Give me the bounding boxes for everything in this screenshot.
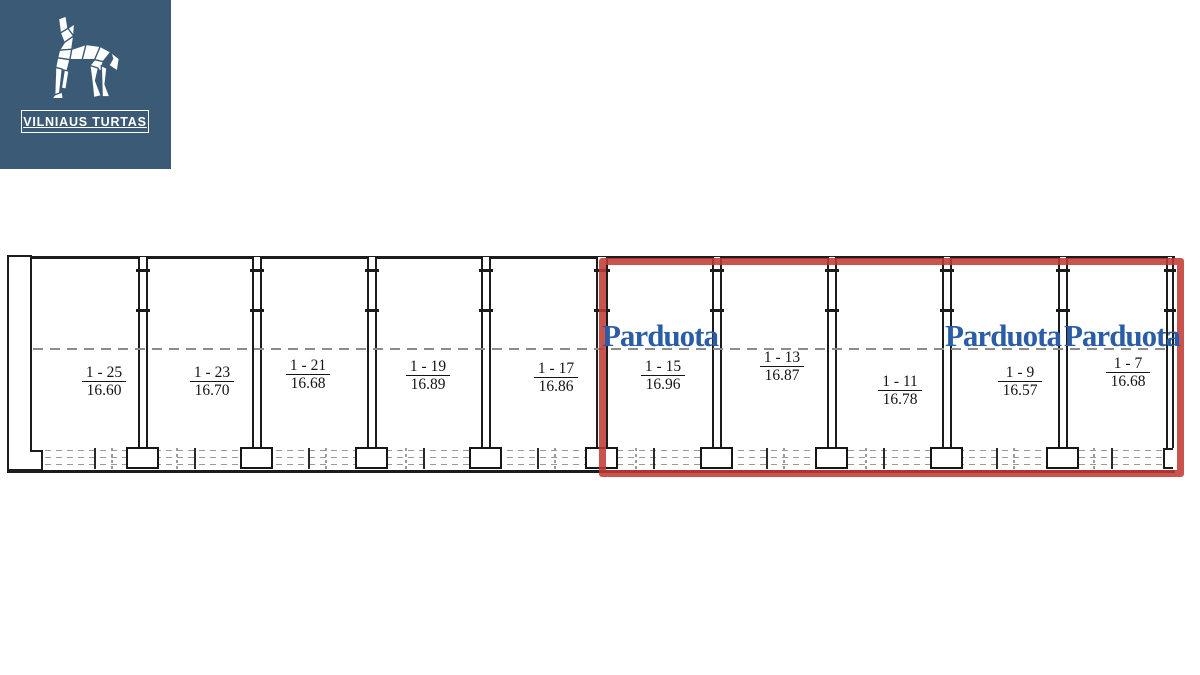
- wolf-logo-icon: [34, 16, 140, 111]
- unit-area: 16.60: [82, 383, 126, 398]
- unit-area: 16.86: [534, 379, 578, 394]
- strip-divider: [308, 448, 310, 469]
- unit-id: 1 - 23: [190, 365, 234, 380]
- unit-area: 16.70: [190, 383, 234, 398]
- wall-footing: [240, 447, 273, 469]
- unit-1-25: 1 - 25 16.60: [82, 365, 126, 398]
- brand-name: VILNIAUS TURTAS: [23, 115, 147, 129]
- unit-1-17: 1 - 17 16.86: [534, 361, 578, 394]
- brand-name-frame: VILNIAUS TURTAS: [21, 110, 149, 133]
- brand-logo: VILNIAUS TURTAS: [0, 0, 171, 169]
- sold-label-unit-1-9: Parduota: [945, 320, 1061, 351]
- unit-1-21: 1 - 21 16.68: [286, 358, 330, 391]
- unit-id: 1 - 21: [286, 358, 330, 373]
- strip-divider: [111, 448, 113, 469]
- left-wall-footing: [30, 450, 43, 471]
- unit-id: 1 - 17: [534, 361, 578, 376]
- unit-id: 1 - 25: [82, 365, 126, 380]
- strip-divider: [554, 448, 556, 469]
- strip-divider: [176, 448, 178, 469]
- unit-1-19: 1 - 19 16.89: [406, 359, 450, 392]
- wall-divider: [481, 257, 491, 448]
- strip-divider: [94, 448, 96, 469]
- wall-divider: [367, 257, 377, 448]
- wall-divider: [138, 257, 148, 448]
- unit-1-23: 1 - 23 16.70: [190, 365, 234, 398]
- strip-divider: [405, 448, 407, 469]
- floor-plan-page: VILNIAUS TURTAS: [0, 0, 1200, 675]
- strip-divider: [423, 448, 425, 469]
- strip-divider: [194, 448, 196, 469]
- wall-divider: [252, 257, 262, 448]
- strip-divider: [325, 448, 327, 469]
- wall-footing: [469, 447, 502, 469]
- left-outer-wall: [7, 255, 32, 471]
- unit-area: 16.89: [406, 377, 450, 392]
- wall-footing: [355, 447, 388, 469]
- unit-id: 1 - 19: [406, 359, 450, 374]
- wall-footing: [126, 447, 159, 469]
- strip-divider: [537, 448, 539, 469]
- unit-area: 16.68: [286, 376, 330, 391]
- sold-label-unit-1-7: Parduota: [1064, 320, 1180, 351]
- sold-label-unit-1-15: Parduota: [602, 320, 718, 351]
- sold-units-highlight-box: [599, 258, 1184, 477]
